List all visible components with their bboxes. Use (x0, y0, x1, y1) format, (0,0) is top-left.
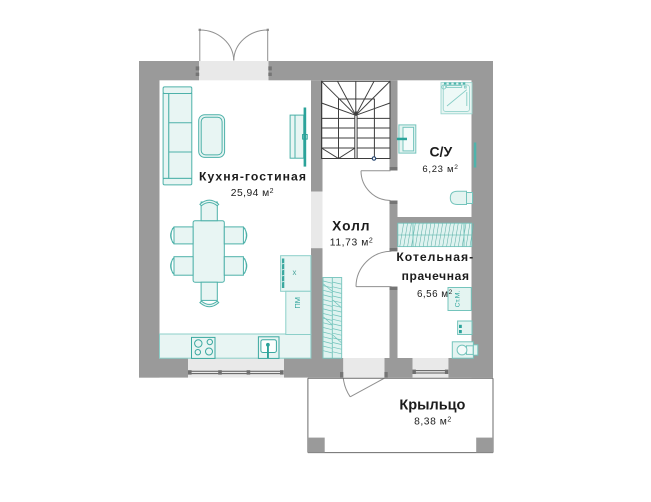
svg-text:х: х (293, 268, 297, 277)
svg-text:Крыльцо: Крыльцо (399, 398, 465, 414)
svg-text:11,73 м2: 11,73 м2 (330, 238, 374, 249)
svg-text:Холл: Холл (332, 219, 370, 234)
svg-text:Ст.М.: Ст.М. (455, 291, 462, 308)
svg-text:С/У: С/У (429, 144, 452, 160)
svg-text:25,94 м2: 25,94 м2 (231, 188, 274, 199)
svg-text:Котельная-: Котельная- (396, 250, 474, 264)
svg-text:Кухня-гостиная: Кухня-гостиная (199, 169, 307, 183)
svg-text:8,38 м2: 8,38 м2 (414, 417, 452, 428)
svg-text:прачечная: прачечная (402, 269, 470, 283)
svg-text:6,56 м2: 6,56 м2 (417, 289, 453, 300)
svg-text:ПМ: ПМ (293, 297, 302, 309)
svg-text:6,23 м2: 6,23 м2 (422, 164, 458, 175)
